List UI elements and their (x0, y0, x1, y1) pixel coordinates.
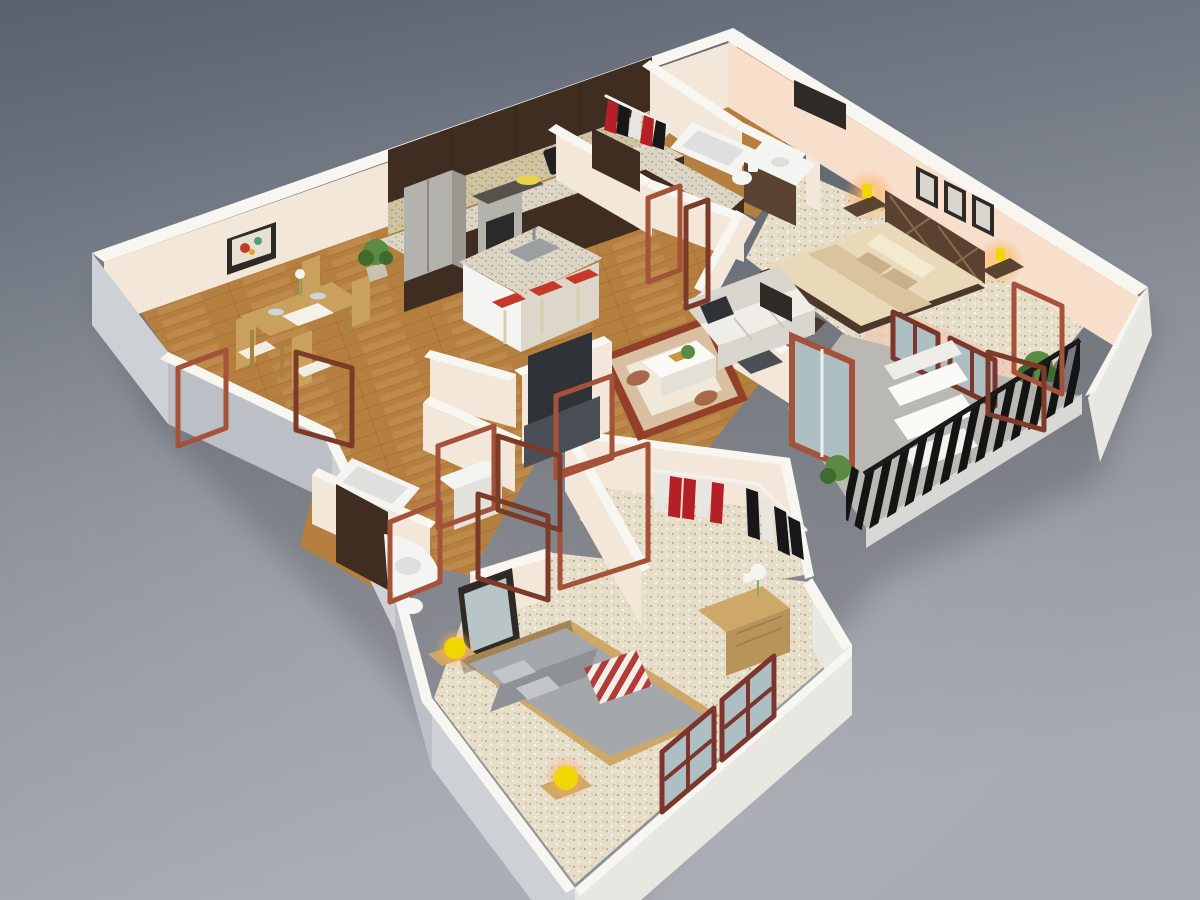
yellow-lamp (444, 637, 466, 659)
table-plant (681, 345, 695, 359)
art-blob-yellow (249, 249, 255, 255)
railing-slats-return (846, 462, 864, 532)
garment-red (710, 482, 724, 524)
basin (395, 557, 421, 575)
plate (310, 293, 326, 300)
art-blob-red (240, 243, 250, 253)
yellow-lamp (554, 766, 578, 790)
art-blob-green (254, 237, 262, 245)
sink-basin (771, 157, 789, 167)
toilet-bowl (401, 598, 423, 614)
plant-foliage (820, 468, 836, 484)
bedside-lamp (862, 184, 872, 198)
white-flowers (743, 573, 753, 583)
garment-red (682, 478, 696, 520)
floorplan-render-stage (0, 0, 1200, 900)
toilet-tank (748, 160, 758, 172)
plant-foliage (358, 250, 374, 266)
fruit-plate (516, 175, 540, 185)
plate (268, 309, 284, 316)
floorplan-3d-svg (0, 0, 1200, 900)
sliding-glass-door (792, 336, 852, 470)
toilet-bowl (732, 171, 752, 185)
plant-foliage (379, 251, 393, 265)
vase-flowers (295, 269, 305, 279)
fridge (404, 170, 466, 282)
garment-white (760, 496, 774, 544)
garment-white (696, 480, 710, 518)
garment-black (746, 488, 760, 540)
garment-red (668, 476, 682, 518)
bedside-lamp (996, 248, 1005, 261)
garment-white (654, 474, 668, 512)
fridge-side (452, 170, 466, 270)
